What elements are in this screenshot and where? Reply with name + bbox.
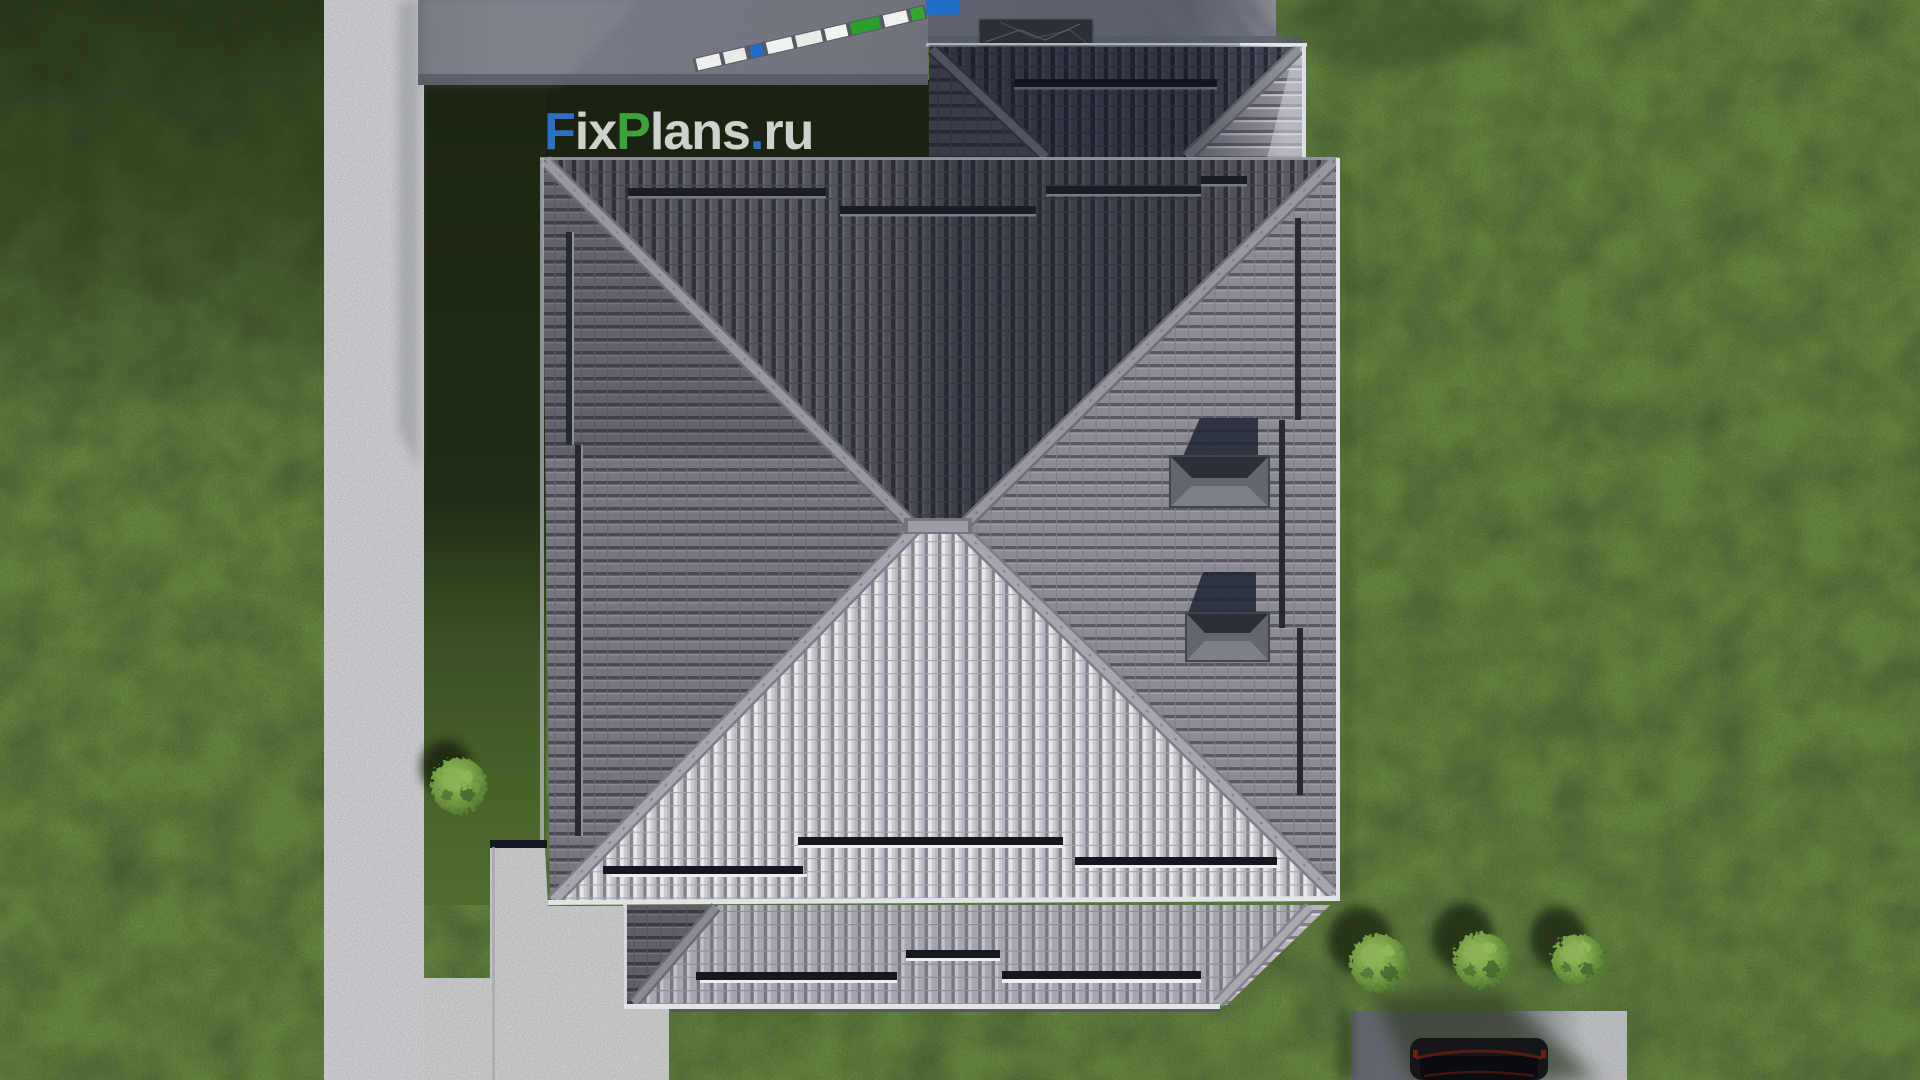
svg-text:FixPlans.ru: FixPlans.ru xyxy=(544,103,813,161)
